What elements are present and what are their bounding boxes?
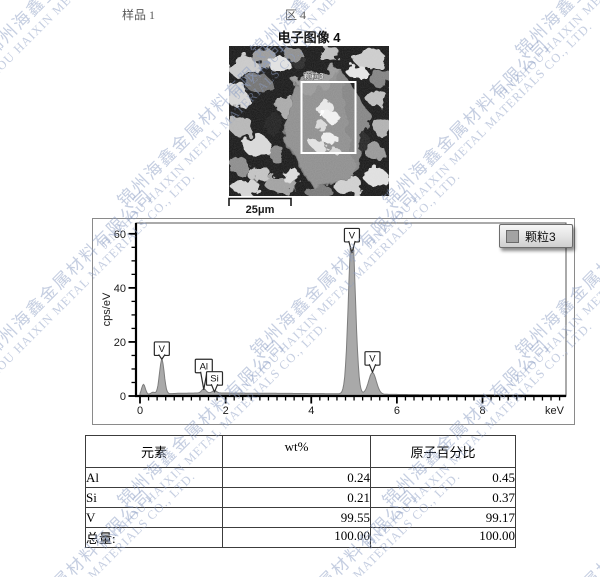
total-label: 总量:	[86, 528, 223, 548]
peak-label-v: V	[344, 228, 359, 252]
col-header-wt: wt%	[223, 436, 371, 468]
chart-legend[interactable]: 颗粒3	[499, 224, 573, 248]
legend-swatch	[506, 230, 519, 243]
col-header-element: 元素	[86, 436, 223, 468]
peak-label-si: Si	[206, 372, 222, 392]
y-ticks: 0204060	[114, 229, 135, 403]
svg-text:Si: Si	[210, 374, 218, 385]
area-label: 区 4	[285, 6, 306, 23]
x-tick-label: 8	[479, 405, 485, 417]
peak-label-v: V	[154, 342, 169, 359]
y-tick-label: 0	[120, 391, 126, 403]
watermark-text: 锦州海鑫金属材料有限公司JINZHOU HAIXIN METAL MATERIA…	[0, 0, 208, 112]
svg-text:V: V	[369, 354, 376, 365]
legend-label: 颗粒3	[525, 228, 556, 245]
spectrum-chart: 02468keV0204060cps/eVVAlSiVV 颗粒3	[92, 218, 575, 425]
x-tick-label: 6	[394, 405, 400, 417]
x-axis-unit-label: keV	[545, 405, 565, 417]
table-row: V 99.55 99.17	[86, 508, 516, 528]
table-header-row: 元素 wt% 原子百分比	[86, 436, 516, 468]
table-row: Si 0.21 0.37	[86, 488, 516, 508]
y-tick-label: 60	[114, 229, 126, 241]
sample-label: 样品 1	[122, 6, 155, 23]
atomic-value: 99.17	[371, 508, 516, 528]
x-tick-label: 4	[308, 405, 314, 417]
wt-value: 0.24	[223, 468, 371, 488]
total-wt: 100.00	[223, 528, 371, 548]
x-tick-label: 2	[223, 405, 229, 417]
table-row: Al 0.24 0.45	[86, 468, 516, 488]
peak-label-v: V	[365, 352, 380, 373]
sem-image: 颗粒3	[229, 46, 389, 196]
watermark-text: 锦州海鑫金属材料有限公司JINZHOU HAIXIN METAL MATERIA…	[472, 0, 600, 112]
sem-selection-label: 颗粒3	[303, 71, 324, 81]
total-atomic: 100.00	[371, 528, 516, 548]
spectrum-plot: 02468keV0204060cps/eVVAlSiVV	[93, 219, 574, 424]
table-total-row: 总量: 100.00 100.00	[86, 528, 516, 548]
atomic-value: 0.45	[371, 468, 516, 488]
element-name: V	[86, 508, 223, 528]
element-name: Al	[86, 468, 223, 488]
atomic-value: 0.37	[371, 488, 516, 508]
elements-table: 元素 wt% 原子百分比 Al 0.24 0.45 Si 0.21 0.37 V…	[85, 435, 516, 548]
col-header-atomic: 原子百分比	[371, 436, 516, 468]
x-tick-label: 0	[137, 405, 143, 417]
wt-value: 99.55	[223, 508, 371, 528]
y-tick-label: 40	[114, 283, 126, 295]
element-name: Si	[86, 488, 223, 508]
wt-value: 0.21	[223, 488, 371, 508]
svg-text:V: V	[159, 344, 166, 355]
y-axis-label: cps/eV	[101, 292, 113, 326]
electron-image-title: 电子图像 4	[229, 27, 389, 46]
y-tick-label: 20	[114, 337, 126, 349]
report-page: 样品 1 区 4 电子图像 4	[0, 0, 600, 577]
svg-text:Al: Al	[200, 361, 208, 372]
x-ticks: 02468	[137, 397, 560, 417]
scale-bar-label: 25μm	[246, 204, 275, 216]
svg-text:V: V	[349, 230, 356, 241]
electron-image: 颗粒3	[229, 46, 389, 196]
